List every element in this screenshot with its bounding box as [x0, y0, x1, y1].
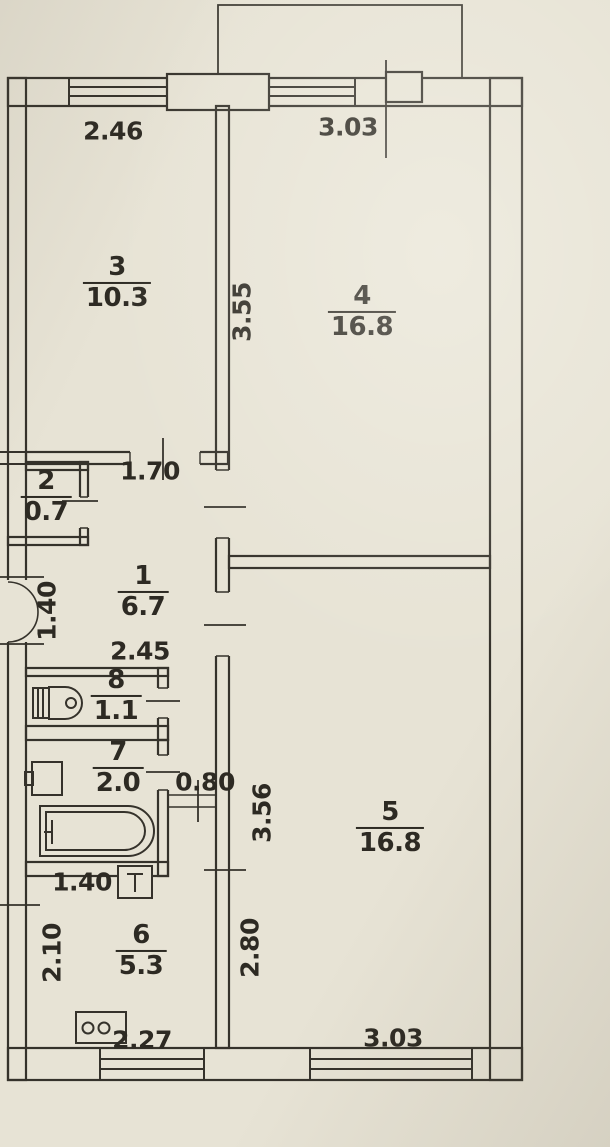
room-area: 6.7: [118, 591, 169, 621]
dim-room5-width-bottom: 3.03: [363, 1024, 423, 1053]
room-area: 0.7: [21, 496, 72, 526]
room-7-label: 7 2.0: [93, 739, 144, 797]
room-2-label: 2 0.7: [21, 468, 72, 526]
floor-plan-page: 3 10.3 4 16.8 2 0.7 1 6.7 8 1.1 7 2.0 6 …: [0, 0, 610, 1147]
room-number: 3: [83, 254, 151, 282]
dim-room3-door-width: 1.70: [120, 457, 180, 486]
room-area: 2.0: [93, 767, 144, 797]
room-6-label: 6 5.3: [116, 922, 167, 980]
room-number: 5: [356, 799, 424, 827]
plan-labels: 3 10.3 4 16.8 2 0.7 1 6.7 8 1.1 7 2.0 6 …: [0, 0, 610, 1147]
room-3-label: 3 10.3: [83, 254, 151, 312]
dim-room3-width-top: 2.46: [83, 117, 143, 146]
room-area: 16.8: [328, 311, 396, 341]
room-5-label: 5 16.8: [356, 799, 424, 857]
dim-room4-height-left: 3.55: [228, 282, 257, 342]
room-number: 1: [118, 563, 169, 591]
room-area: 10.3: [83, 282, 151, 312]
dim-kitchen-height-right: 2.80: [236, 918, 265, 978]
dim-kitchen-height-left: 2.10: [38, 923, 67, 983]
dim-kitchen-top-width: 1.40: [52, 868, 112, 897]
dim-entrance-width: 1.40: [33, 581, 62, 641]
dim-hall-width: 2.45: [110, 637, 170, 666]
room-area: 5.3: [116, 950, 167, 980]
room-number: 7: [93, 739, 144, 767]
dim-kitchen-width-bottom: 2.27: [112, 1026, 172, 1055]
dim-room4-width-top: 3.03: [318, 113, 378, 142]
room-number: 2: [21, 468, 72, 496]
room-8-label: 8 1.1: [91, 667, 142, 725]
room-number: 8: [91, 667, 142, 695]
room-4-label: 4 16.8: [328, 283, 396, 341]
room-area: 1.1: [91, 695, 142, 725]
room-1-label: 1 6.7: [118, 563, 169, 621]
room-number: 6: [116, 922, 167, 950]
room-area: 16.8: [356, 827, 424, 857]
dim-room5-height-upper: 3.56: [248, 783, 277, 843]
room-number: 4: [328, 283, 396, 311]
dim-kitchen-door-width: 0.80: [175, 768, 235, 797]
